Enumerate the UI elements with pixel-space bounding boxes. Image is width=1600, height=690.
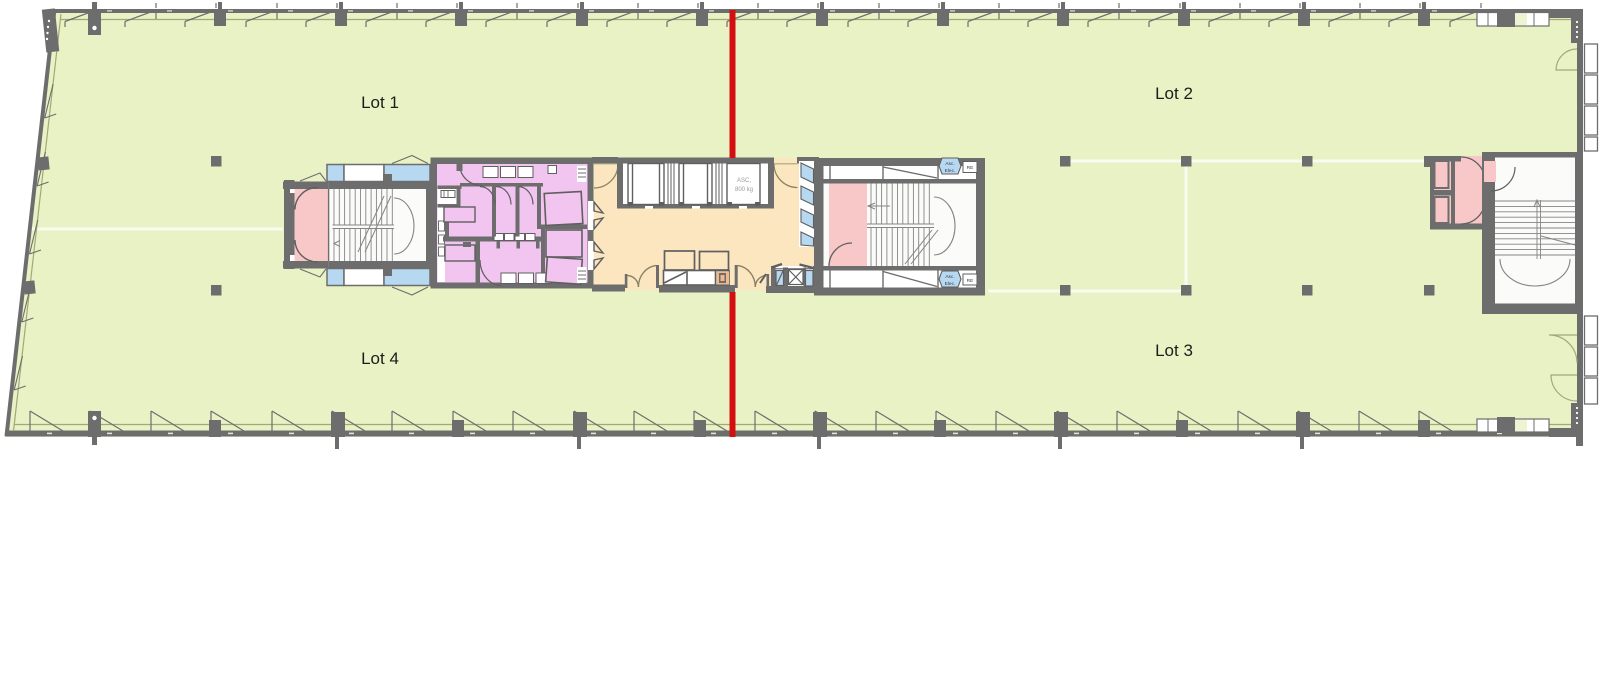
svg-text:ASC,: ASC, [737, 178, 751, 184]
svg-text:Elec.: Elec. [945, 281, 956, 287]
svg-text:Asc.: Asc. [945, 161, 954, 167]
svg-text:Lot 1: Lot 1 [361, 93, 399, 112]
svg-text:RE: RE [967, 165, 974, 171]
svg-text:Elec.: Elec. [945, 168, 956, 174]
svg-text:Lot 4: Lot 4 [361, 349, 399, 368]
svg-text:RE: RE [967, 278, 974, 284]
svg-text:Lot 3: Lot 3 [1155, 341, 1193, 360]
svg-text:Asc.: Asc. [945, 274, 954, 280]
svg-text:Lot 2: Lot 2 [1155, 84, 1193, 103]
svg-text:800 kg: 800 kg [735, 187, 753, 193]
